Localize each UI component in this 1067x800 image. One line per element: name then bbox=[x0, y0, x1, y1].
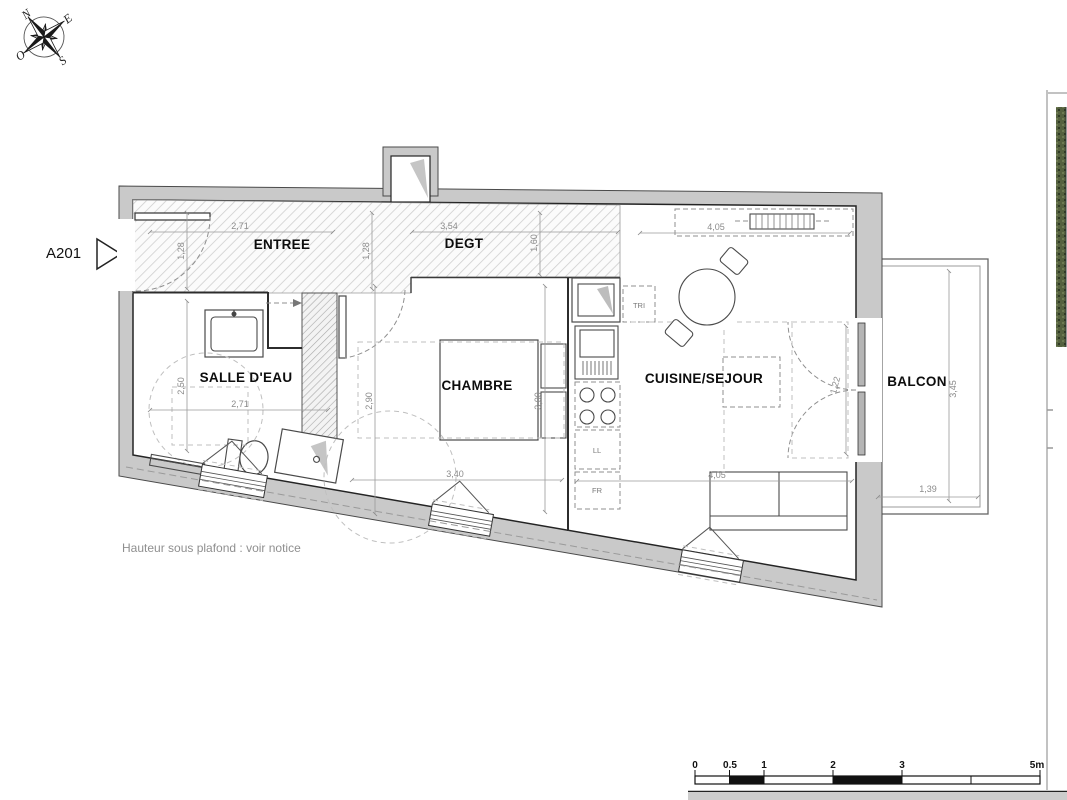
floorplan-drawing: N E S O A201 bbox=[0, 0, 1067, 800]
dim-chambre-depth-right: 3,00 bbox=[533, 392, 543, 410]
room-label-sde: SALLE D'EAU bbox=[200, 370, 293, 385]
scale-label-2: 2 bbox=[830, 760, 836, 771]
compass-south-label: S bbox=[56, 53, 69, 68]
kitchen-sink bbox=[572, 278, 620, 322]
scale-label-05: 0.5 bbox=[723, 760, 737, 771]
room-label-chambre: CHAMBRE bbox=[441, 378, 512, 393]
unit-marker: A201 bbox=[46, 239, 121, 269]
dim-entree-depth-right: 1,28 bbox=[361, 242, 371, 260]
adjacent-image-strip bbox=[1056, 107, 1066, 347]
tri-label: TRI bbox=[633, 301, 645, 310]
scale-bar: 0 0.5 1 2 3 5m bbox=[692, 760, 1044, 784]
dim-chambre-depth: 2,90 bbox=[364, 392, 374, 410]
dim-chambre-width: 3,40 bbox=[446, 469, 464, 479]
dim-degt-depth: 1,60 bbox=[529, 234, 539, 252]
scale-label-3: 3 bbox=[899, 760, 905, 771]
cropped-bottom-strip bbox=[688, 792, 1067, 800]
entry-door-leaf bbox=[135, 213, 210, 220]
compass-rose-icon: N E S O bbox=[0, 0, 94, 87]
dim-entree-width: 2,71 bbox=[231, 221, 249, 231]
bedroom-door-leaf bbox=[339, 296, 346, 358]
door-panel bbox=[858, 323, 865, 386]
scale-label-5m: 5m bbox=[1030, 760, 1045, 771]
compass-west-label: O bbox=[13, 47, 29, 64]
room-label-balcon: BALCON bbox=[887, 374, 947, 389]
ll-label: LL bbox=[593, 446, 601, 455]
dim-entree-depth-left: 1,28 bbox=[176, 242, 186, 260]
dim-balcon-width: 1,39 bbox=[919, 484, 937, 494]
dim-sejour-width-top: 4,05 bbox=[707, 222, 725, 232]
room-label-degt: DEGT bbox=[445, 236, 484, 251]
floorplan-page: N E S O A201 bbox=[0, 0, 1067, 800]
unit-marker-label: A201 bbox=[46, 245, 81, 262]
dim-sejour-width: 4,05 bbox=[708, 470, 726, 480]
room-label-cuisine: CUISINE/SEJOUR bbox=[645, 371, 763, 386]
compass-east-label: E bbox=[60, 10, 76, 27]
ceiling-height-note: Hauteur sous plafond : voir notice bbox=[122, 541, 301, 555]
fr-label: FR bbox=[592, 486, 603, 495]
scale-label-1: 1 bbox=[761, 760, 767, 771]
door-panel bbox=[858, 392, 865, 455]
dim-sde-depth: 2,50 bbox=[176, 377, 186, 395]
scale-label-0: 0 bbox=[692, 760, 698, 771]
dim-degt-width: 3,54 bbox=[440, 221, 458, 231]
room-label-entree: ENTREE bbox=[254, 237, 311, 252]
dim-sde-width: 2,71 bbox=[231, 399, 249, 409]
dim-balcon-depth: 3,45 bbox=[948, 380, 958, 398]
